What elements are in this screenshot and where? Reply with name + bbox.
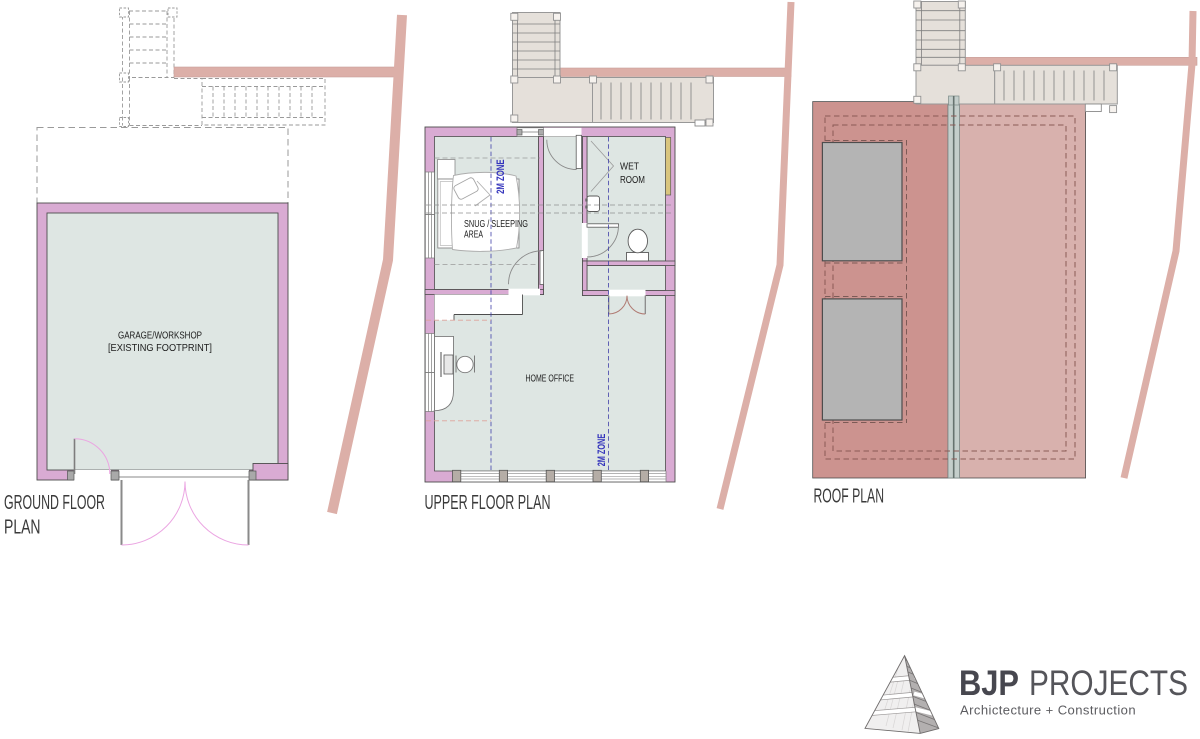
- svg-text:ROOM: ROOM: [620, 175, 645, 186]
- svg-text:AREA: AREA: [464, 230, 483, 241]
- svg-text:2M ZONE: 2M ZONE: [596, 434, 608, 467]
- svg-text:UPPER FLOOR PLAN: UPPER FLOOR PLAN: [425, 491, 551, 514]
- svg-text:BJP: BJP: [959, 664, 1019, 703]
- svg-text:SNUG / SLEEPING: SNUG / SLEEPING: [464, 219, 528, 230]
- svg-text:2M ZONE: 2M ZONE: [495, 159, 507, 194]
- svg-text:[EXISTING FOOTPRINT]: [EXISTING FOOTPRINT]: [108, 343, 212, 354]
- svg-text:ROOF PLAN: ROOF PLAN: [814, 485, 885, 508]
- svg-text:Archictecture + Construction: Archictecture + Construction: [960, 704, 1136, 718]
- svg-text:PROJECTS: PROJECTS: [1029, 664, 1188, 703]
- svg-text:GROUND FLOOR: GROUND FLOOR: [4, 491, 105, 514]
- svg-text:PLAN: PLAN: [4, 516, 41, 539]
- svg-text:HOME OFFICE: HOME OFFICE: [526, 374, 575, 385]
- svg-text:WET: WET: [620, 162, 639, 173]
- svg-text:GARAGE/WORKSHOP: GARAGE/WORKSHOP: [118, 331, 202, 342]
